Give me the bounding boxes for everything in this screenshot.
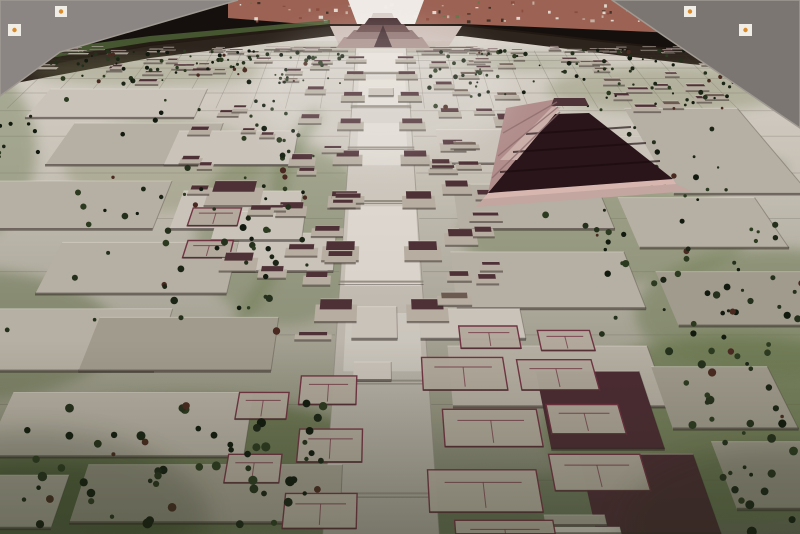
tree-dot	[651, 280, 657, 286]
tree-dot	[97, 79, 101, 83]
tree-dot	[170, 297, 178, 305]
tree-dot	[717, 166, 719, 168]
tree-dot	[184, 69, 187, 72]
tree-dot	[772, 222, 778, 228]
tree-dot	[103, 75, 106, 78]
tree-dot	[498, 49, 502, 53]
tree-dot	[247, 80, 252, 85]
tree-dot	[691, 321, 697, 327]
tree-dot	[603, 67, 606, 70]
tree-dot	[93, 318, 97, 322]
tree-dot	[710, 127, 715, 132]
tree-dot	[261, 126, 267, 132]
tree-dot	[149, 68, 153, 72]
tree-dot	[692, 101, 695, 104]
tree-dot	[606, 97, 608, 99]
tree-dot	[657, 49, 661, 53]
tree-dot	[256, 55, 259, 58]
tree-dot	[264, 295, 268, 299]
tree-dot	[240, 224, 247, 231]
tree-dot	[159, 195, 163, 199]
tree-dot	[72, 275, 78, 281]
tree-dot	[728, 85, 731, 88]
tree-dot	[121, 82, 125, 86]
tree-dot	[690, 330, 696, 336]
tree-dot	[133, 51, 135, 53]
tree-dot	[262, 184, 266, 188]
tree-dot	[679, 58, 683, 62]
tree-dot	[784, 312, 791, 319]
tree-dot	[301, 190, 305, 194]
tree-dot	[54, 60, 58, 64]
tree-dot	[244, 261, 248, 265]
tree-dot	[94, 53, 98, 57]
tree-dot	[653, 82, 657, 86]
tree-dot	[122, 67, 126, 71]
tree-dot	[264, 197, 267, 200]
tree-dot	[103, 209, 106, 212]
tree-dot	[707, 79, 711, 83]
tree-dot	[721, 335, 726, 340]
tree-dot	[287, 150, 291, 154]
tree-dot	[312, 155, 314, 157]
tree-dot	[626, 50, 630, 54]
screenshot-root	[0, 0, 800, 534]
tree-dot	[206, 67, 209, 70]
tree-dot	[130, 80, 132, 82]
tree-dot	[672, 63, 675, 66]
tree-dot	[273, 260, 279, 266]
tree-dot	[299, 237, 305, 243]
tree-dot	[116, 57, 120, 61]
tree-dot	[730, 309, 736, 315]
tree-dot	[246, 216, 251, 221]
tree-dot	[599, 331, 605, 337]
tree-dot	[675, 271, 681, 277]
tree-dot	[29, 115, 32, 118]
tree-dot	[503, 49, 507, 53]
tree-dot	[285, 204, 291, 210]
tree-dot	[603, 209, 606, 212]
wall-marker-dot	[12, 28, 16, 32]
tree-dot	[183, 50, 186, 53]
wall-marker-dot	[59, 9, 63, 13]
tree-dot	[248, 56, 251, 59]
tree-dot	[633, 126, 636, 129]
tree-dot	[642, 58, 644, 60]
tree-dot	[732, 261, 736, 265]
tree-dot	[242, 68, 247, 73]
tree-dot	[233, 68, 236, 71]
tree-dot	[596, 49, 599, 52]
teotihuacan-scale-model-photo	[0, 0, 800, 534]
tree-dot	[230, 65, 233, 68]
tree-dot	[280, 153, 286, 159]
tree-dot	[686, 247, 691, 252]
tree-dot	[622, 260, 629, 267]
tree-dot	[522, 90, 526, 94]
tree-dot	[793, 290, 797, 294]
tree-dot	[704, 71, 708, 75]
tree-dot	[713, 291, 720, 298]
tree-dot	[665, 54, 668, 57]
tree-dot	[211, 50, 214, 53]
tree-dot	[84, 59, 88, 63]
tree-dot	[617, 50, 621, 54]
tree-dot	[655, 149, 660, 154]
tree-dot	[575, 74, 579, 78]
tree-dot	[684, 104, 687, 107]
tree-dot	[693, 174, 699, 180]
tree-dot	[576, 62, 579, 65]
tree-dot	[175, 66, 178, 69]
tree-dot	[61, 76, 66, 81]
tree-dot	[597, 70, 599, 72]
tree-dot	[80, 204, 86, 210]
tree-dot	[120, 132, 125, 137]
tree-dot	[754, 239, 758, 243]
tree-dot	[698, 90, 703, 95]
tree-dot	[654, 103, 657, 106]
tree-dot	[218, 53, 222, 57]
tree-dot	[305, 263, 308, 266]
tree-dot	[663, 308, 666, 311]
tree-dot	[146, 52, 150, 56]
tree-dot	[611, 68, 614, 71]
tree-dot	[604, 248, 607, 251]
tree-dot	[720, 311, 725, 316]
tree-dot	[242, 136, 247, 141]
tree-dot	[249, 115, 252, 118]
tree-dot	[244, 176, 247, 179]
tree-dot	[280, 167, 286, 173]
tree-dot	[539, 65, 541, 67]
tree-dot	[136, 212, 139, 215]
tree-dot	[671, 173, 676, 178]
tree-dot	[175, 71, 178, 74]
tree-dot	[651, 86, 654, 89]
tree-dot	[178, 266, 185, 273]
tree-dot	[277, 137, 283, 143]
tree-dot	[621, 232, 626, 237]
tree-dot	[86, 222, 92, 228]
tree-dot	[198, 108, 201, 111]
tree-dot	[236, 63, 239, 66]
tree-dot	[542, 212, 549, 219]
tree-dot	[652, 140, 656, 144]
tree-dot	[221, 239, 228, 246]
tree-dot	[252, 50, 255, 53]
tree-dot	[183, 193, 186, 196]
tree-dot	[618, 82, 621, 85]
tree-dot	[164, 99, 167, 102]
tree-dot	[237, 306, 242, 311]
tree-dot	[703, 95, 708, 100]
tree-dot	[757, 230, 760, 233]
tree-dot	[627, 132, 632, 137]
tree-dot	[33, 129, 37, 133]
tree-dot	[632, 83, 634, 85]
tree-dot	[660, 277, 666, 283]
tree-dot	[50, 63, 52, 65]
tree-dot	[91, 55, 93, 57]
tree-dot	[622, 49, 624, 51]
tree-dot	[222, 54, 225, 57]
wall-marker-dot	[743, 28, 747, 32]
tree-dot	[583, 223, 589, 229]
tree-dot	[673, 107, 676, 110]
tree-dot	[111, 53, 115, 57]
tree-dot	[722, 82, 726, 86]
tree-dot	[770, 275, 775, 280]
tree-dot	[600, 108, 603, 111]
tree-dot	[145, 66, 149, 70]
tree-dot	[516, 55, 518, 57]
tree-dot	[266, 246, 271, 251]
tree-dot	[199, 187, 203, 191]
tree-dot	[725, 94, 729, 98]
tree-dot	[533, 80, 535, 82]
tree-dot	[141, 187, 146, 192]
tree-dot	[683, 194, 686, 197]
tree-dot	[2, 145, 6, 149]
tree-dot	[196, 73, 199, 76]
tree-dot	[672, 92, 674, 94]
tree-dot	[159, 111, 164, 116]
tree-dot	[81, 75, 83, 77]
tree-dot	[582, 49, 585, 52]
tree-dot	[106, 57, 110, 61]
tree-dot	[9, 122, 13, 126]
tree-dot	[161, 79, 163, 81]
tree-dot	[650, 57, 652, 59]
tree-dot	[160, 59, 164, 63]
tree-dot	[64, 97, 69, 102]
tree-dot	[236, 51, 239, 54]
tree-dot	[680, 219, 685, 224]
tree-dot	[27, 122, 30, 125]
tree-dot	[705, 290, 711, 296]
tree-dot	[631, 66, 635, 70]
tree-dot	[189, 55, 191, 57]
tree-dot	[247, 306, 250, 309]
tree-dot	[737, 268, 740, 271]
tree-dot	[523, 52, 527, 56]
tree-dot	[252, 246, 256, 250]
tree-dot	[179, 315, 184, 320]
tree-dot	[614, 316, 618, 320]
tree-dot	[108, 53, 112, 57]
tree-dot	[153, 118, 158, 123]
tree-dot	[583, 78, 586, 81]
tree-dot	[75, 190, 81, 196]
tree-dot	[157, 54, 159, 56]
tree-dot	[77, 62, 80, 65]
tree-dot	[227, 59, 229, 61]
tree-dot	[693, 155, 696, 158]
tree-dot	[749, 228, 753, 232]
tree-dot	[193, 202, 198, 207]
tree-dot	[602, 59, 606, 63]
tree-dot	[706, 188, 710, 192]
tree-dot	[185, 165, 191, 171]
tree-dot	[571, 51, 575, 55]
tree-dot	[615, 95, 617, 97]
tree-dot	[721, 107, 724, 110]
tree-dot	[696, 198, 699, 201]
tree-dot	[684, 256, 690, 262]
tree-dot	[196, 62, 198, 64]
tree-dot	[606, 229, 612, 235]
overexposure-bloom	[251, 22, 511, 162]
tree-dot	[606, 239, 611, 244]
tree-dot	[219, 58, 224, 63]
tree-dot	[212, 207, 216, 211]
tree-dot	[773, 235, 778, 240]
tree-dot	[237, 73, 239, 75]
tree-dot	[81, 64, 84, 67]
tree-dot	[629, 54, 632, 57]
tree-dot	[157, 50, 160, 53]
tree-dot	[156, 68, 159, 71]
tree-dot	[283, 187, 288, 192]
tree-dot	[563, 70, 567, 74]
model-scene	[0, 0, 800, 534]
tree-dot	[36, 150, 40, 154]
tree-dot	[165, 228, 171, 234]
tree-dot	[282, 174, 287, 179]
tree-dot	[724, 284, 731, 291]
tree-dot	[243, 62, 245, 64]
tree-dot	[215, 246, 220, 251]
tree-dot	[606, 91, 611, 96]
tree-dot	[122, 213, 129, 220]
tree-dot	[629, 70, 632, 73]
tree-dot	[273, 327, 280, 334]
tree-dot	[248, 49, 251, 52]
tree-dot	[685, 98, 688, 101]
tree-dot	[266, 52, 270, 56]
tree-dot	[713, 97, 715, 99]
tree-dot	[303, 195, 307, 199]
tree-dot	[655, 60, 658, 63]
tree-dot	[741, 289, 744, 292]
tree-dot	[512, 54, 516, 58]
tree-dot	[166, 51, 170, 55]
tree-dot	[270, 254, 275, 259]
tree-dot	[267, 229, 271, 233]
tree-dot	[211, 61, 214, 64]
tree-dot	[724, 188, 727, 191]
tree-dot	[5, 328, 10, 333]
tree-dot	[668, 86, 671, 89]
tree-dot	[605, 271, 611, 277]
tree-dot	[777, 305, 781, 309]
tree-dot	[162, 284, 167, 289]
tree-dot	[111, 176, 114, 179]
tree-dot	[106, 251, 110, 255]
tree-dot	[747, 298, 753, 304]
tree-dot	[596, 234, 599, 237]
tree-dot	[263, 274, 268, 279]
wall-marker-dot	[688, 9, 692, 13]
tree-dot	[163, 240, 170, 247]
tree-dot	[594, 227, 599, 232]
tree-dot	[115, 63, 117, 65]
tree-dot	[255, 123, 258, 126]
tree-dot	[567, 61, 572, 66]
tree-dot	[249, 237, 253, 241]
